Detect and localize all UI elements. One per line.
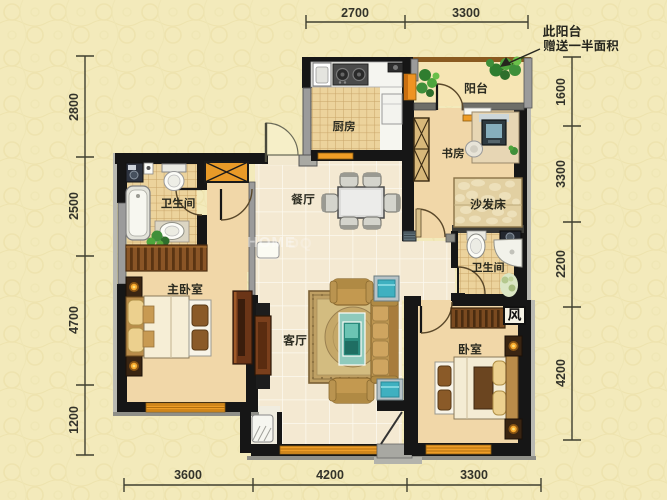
svg-text:2700: 2700 [341,6,369,20]
svg-text:2800: 2800 [67,93,81,121]
svg-text:1600: 1600 [554,78,568,106]
svg-text:4200: 4200 [554,359,568,387]
svg-text:2200: 2200 [554,250,568,278]
svg-text:DQ: DQ [288,235,313,252]
svg-text:3600: 3600 [174,468,202,482]
svg-text:3300: 3300 [452,6,480,20]
svg-text:4700: 4700 [67,306,81,334]
svg-text:1200: 1200 [67,406,81,434]
svg-text:4200: 4200 [316,468,344,482]
svg-text:3300: 3300 [460,468,488,482]
svg-text:3300: 3300 [554,160,568,188]
svg-text:2500: 2500 [67,192,81,220]
